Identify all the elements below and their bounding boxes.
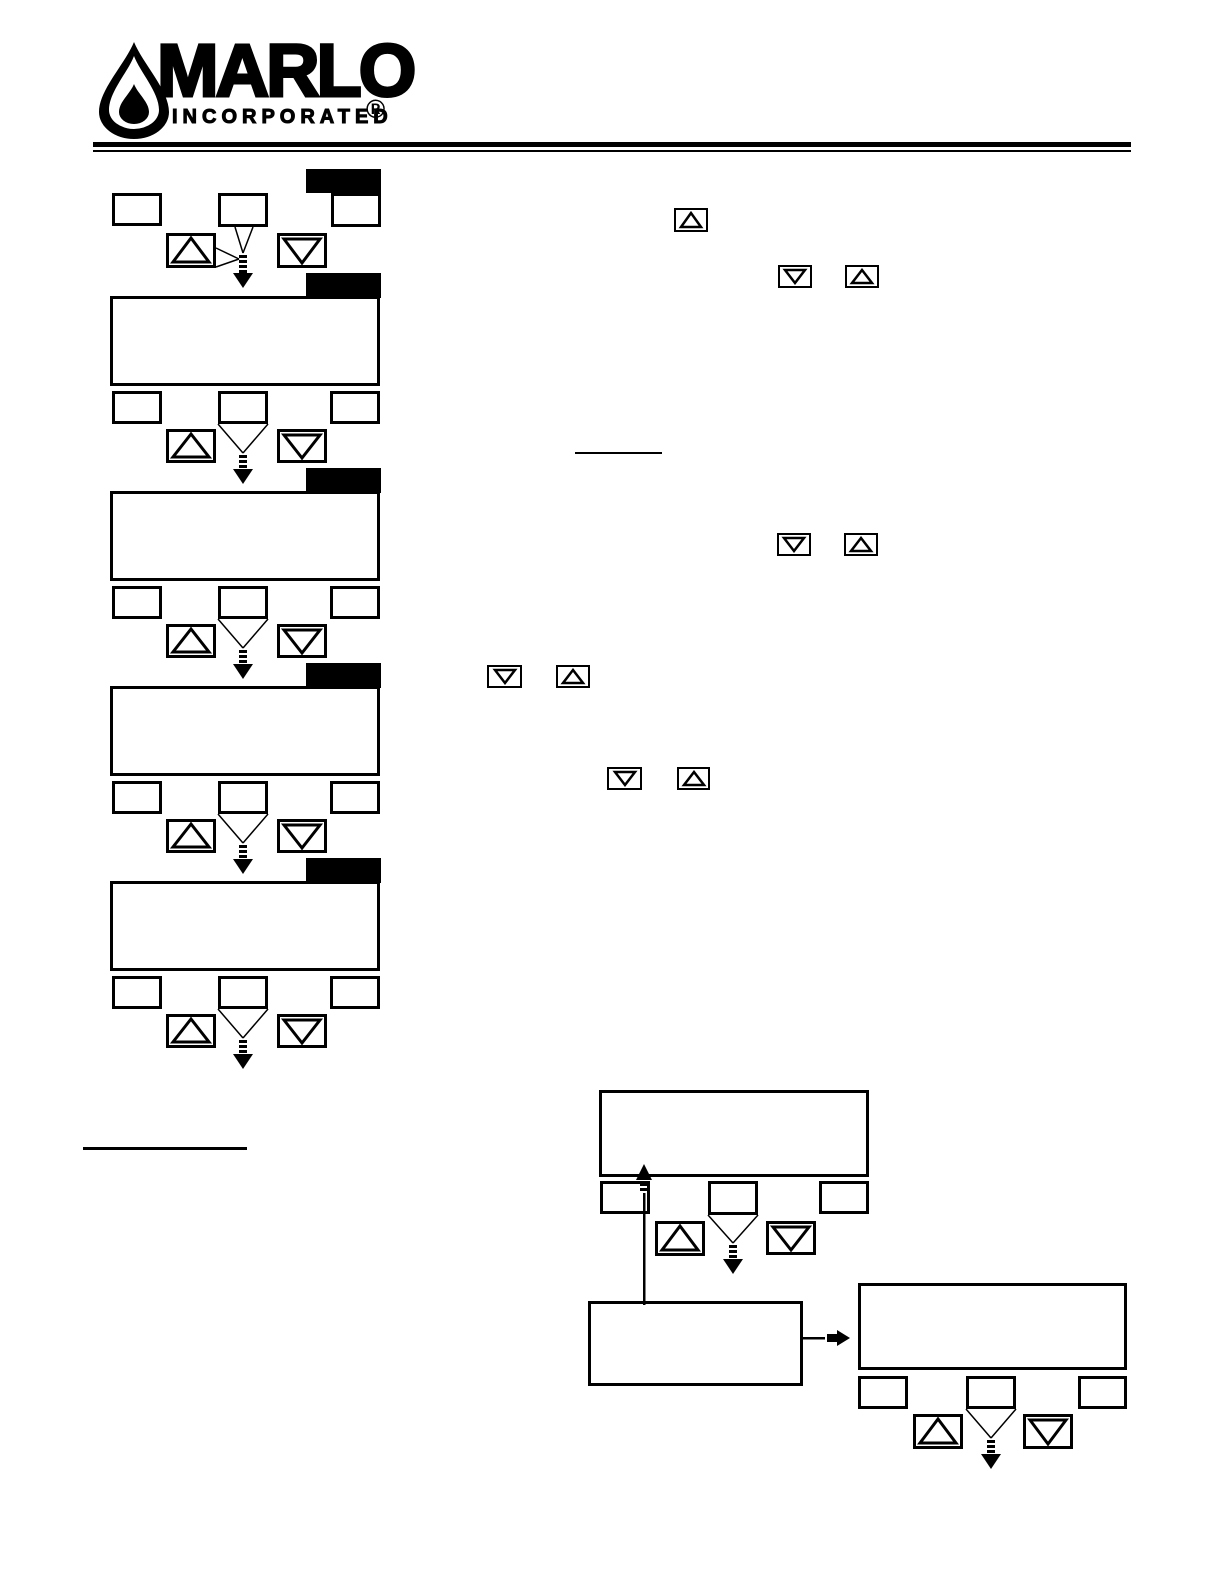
section-tab [306, 273, 381, 298]
up-triangle-icon [849, 268, 875, 285]
process-box-b [588, 1301, 803, 1386]
key-slot-left [112, 391, 162, 424]
down-key-button [277, 429, 327, 463]
down-key-button [766, 1221, 816, 1255]
down-triangle-icon [280, 1017, 324, 1045]
key-slot-right [330, 781, 380, 814]
down-triangle-icon [782, 268, 808, 285]
section-tab [306, 663, 381, 688]
up-key-button [655, 1221, 705, 1256]
down-triangle-icon [612, 770, 638, 787]
down-triangle-icon [769, 1224, 813, 1252]
display-box-c [858, 1283, 1127, 1370]
key-slot-center [218, 976, 268, 1009]
inline-up-key [674, 208, 708, 232]
manual-page: MARLO INCORPORATED ® [0, 0, 1224, 1584]
inline-down-key [777, 533, 811, 556]
registered-mark: ® [366, 94, 385, 125]
key-slot-right [330, 976, 380, 1009]
flow-down-connector [703, 1215, 763, 1277]
header-rule-thin [93, 150, 1131, 152]
section-tab [306, 858, 381, 883]
flow-down-connector [213, 424, 273, 486]
underline-blank-2 [83, 1147, 247, 1150]
up-triangle-icon [916, 1417, 960, 1446]
display-box [110, 296, 380, 386]
key-slot-left [858, 1376, 908, 1409]
down-key-button [1023, 1414, 1073, 1449]
key-slot-center [218, 391, 268, 424]
flow-down-connector [213, 227, 273, 291]
up-key-button [166, 819, 216, 853]
key-slot-center [966, 1376, 1016, 1409]
down-triangle-icon [280, 627, 324, 655]
up-triangle-icon [169, 236, 213, 265]
logo-subtitle: INCORPORATED [172, 106, 393, 129]
flow-right-connector [803, 1329, 859, 1347]
section-tab [306, 169, 381, 193]
key-slot-center [708, 1181, 758, 1215]
key-slot-left [112, 976, 162, 1009]
down-triangle-icon [280, 822, 324, 850]
inline-down-key [778, 265, 812, 288]
down-triangle-icon [280, 432, 324, 460]
flow-down-connector [213, 1009, 273, 1071]
down-key-button [277, 819, 327, 853]
inline-down-key [607, 767, 642, 790]
underline-blank-1 [575, 452, 662, 454]
up-triangle-icon [848, 536, 874, 553]
key-slot-right [331, 193, 381, 227]
down-key-button [277, 1014, 327, 1048]
up-triangle-icon [169, 822, 213, 850]
key-slot-center [218, 193, 268, 227]
up-triangle-icon [678, 211, 704, 229]
down-triangle-icon [492, 668, 518, 685]
key-slot-right [330, 586, 380, 619]
header-rule-thick [93, 142, 1131, 147]
up-key-button [166, 1014, 216, 1048]
key-slot-right [330, 391, 380, 424]
inline-up-key [845, 265, 879, 288]
flow-down-connector [961, 1409, 1021, 1471]
down-triangle-icon [1026, 1417, 1070, 1446]
inline-up-key [844, 533, 878, 556]
inline-up-key [556, 665, 590, 688]
display-box [110, 686, 380, 776]
down-triangle-icon [280, 236, 324, 265]
key-slot-left [112, 193, 162, 226]
key-slot-right [1078, 1376, 1127, 1409]
display-box [110, 491, 380, 581]
key-slot-center [218, 586, 268, 619]
section-tab [306, 468, 381, 493]
up-triangle-icon [169, 627, 213, 655]
up-triangle-icon [169, 432, 213, 460]
up-triangle-icon [681, 770, 707, 787]
up-key-button [166, 233, 216, 268]
key-slot-left [112, 586, 162, 619]
flow-down-connector [213, 814, 273, 876]
display-box [110, 881, 380, 971]
inline-up-key [677, 767, 710, 790]
down-key-button [277, 624, 327, 658]
up-key-button [913, 1414, 963, 1449]
up-key-button [166, 429, 216, 463]
up-triangle-icon [658, 1224, 702, 1253]
up-key-button [166, 624, 216, 658]
key-slot-center [218, 781, 268, 814]
down-triangle-icon [781, 536, 807, 553]
key-slot-right [819, 1181, 869, 1214]
flow-up-connector [633, 1160, 655, 1305]
up-triangle-icon [560, 668, 586, 685]
inline-down-key [487, 665, 522, 688]
up-triangle-icon [169, 1017, 213, 1045]
key-slot-left [112, 781, 162, 814]
flow-down-connector [213, 619, 273, 681]
down-key-button [277, 233, 327, 268]
